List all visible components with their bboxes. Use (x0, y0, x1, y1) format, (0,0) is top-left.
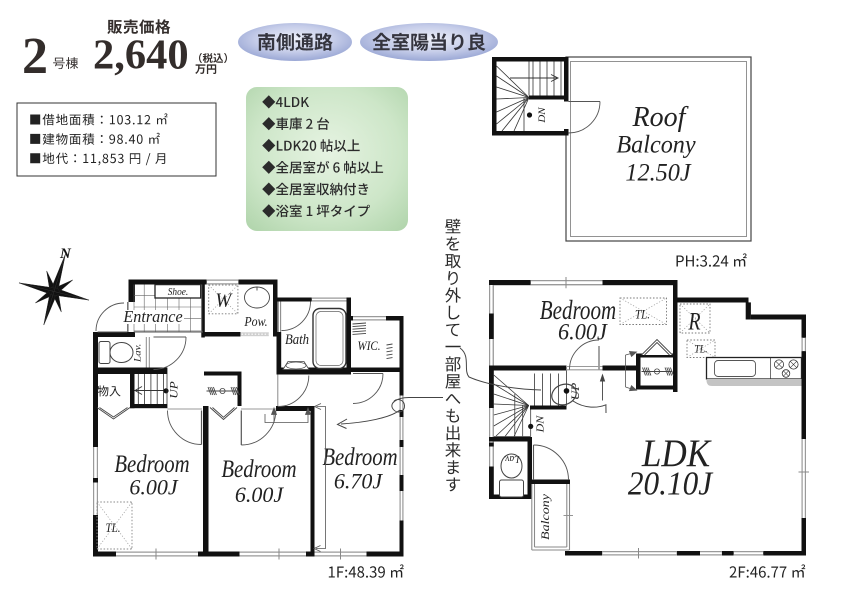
svg-text:DN: DN (538, 106, 548, 124)
svg-text:Bedroom: Bedroom (221, 455, 296, 482)
svg-text:6.00J: 6.00J (235, 482, 285, 507)
svg-text:Roof: Roof (632, 102, 689, 133)
svg-text:6.00J: 6.00J (129, 475, 179, 500)
svg-text:Balcony: Balcony (616, 131, 696, 159)
svg-text:R: R (688, 307, 701, 335)
svg-text:W: W (215, 290, 233, 312)
svg-text:Balcony: Balcony (538, 494, 552, 540)
svg-text:UP: UP (167, 381, 180, 399)
svg-text:Bedroom: Bedroom (114, 450, 189, 477)
svg-text:TL.: TL. (635, 307, 650, 322)
svg-text:TL.: TL. (105, 520, 120, 535)
svg-text:DN: DN (535, 415, 546, 433)
svg-text:Entrance: Entrance (122, 307, 182, 326)
svg-text:12.50J: 12.50J (625, 159, 691, 187)
svg-text:Bedroom: Bedroom (322, 443, 397, 470)
svg-text:6.70J: 6.70J (334, 469, 384, 494)
svg-text:Lav.: Lav. (133, 344, 143, 363)
svg-text:2,640: 2,640 (93, 32, 189, 79)
svg-text:6.00J: 6.00J (558, 319, 608, 344)
svg-text:WIC.: WIC. (358, 338, 381, 353)
svg-text:Lav.: Lav. (504, 453, 521, 465)
svg-text:20.10J: 20.10J (628, 465, 714, 502)
svg-text:TL.: TL. (694, 343, 707, 356)
svg-text:Shoe.: Shoe. (168, 286, 188, 298)
svg-text:2: 2 (22, 28, 48, 85)
svg-text:Pow.: Pow. (243, 313, 267, 329)
svg-text:Bath: Bath (285, 332, 309, 348)
svg-text:N: N (59, 246, 72, 262)
